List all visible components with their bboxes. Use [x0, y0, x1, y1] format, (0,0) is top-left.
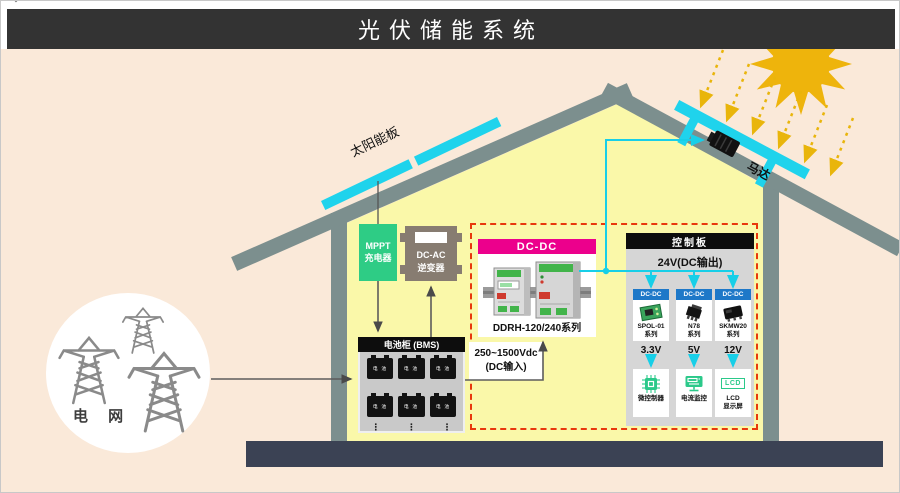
mount-tab [457, 265, 462, 274]
monitor-icon [676, 369, 712, 395]
dc-output-label: 24V(DC输出) [626, 254, 754, 270]
battery-body: 电 池 电 池 电 池 电 池 电 池 电 池 [358, 352, 465, 433]
psu-illustration [478, 254, 596, 320]
dcdc-model: DDRH-120/240系列 [478, 319, 596, 334]
battery-cell: 电 池 [367, 358, 393, 379]
inverter-display [415, 232, 447, 243]
right-wall [763, 179, 779, 441]
page-title: 光伏储能系统 [358, 13, 544, 45]
lcd-label-2: 显示屏 [715, 403, 751, 411]
battery-cell: 电 池 [398, 396, 424, 417]
title-bar: 光伏储能系统 [7, 9, 895, 49]
mppt-label-1: MPPT [365, 242, 390, 251]
battery-cell: 电 池 [367, 396, 393, 417]
module-card-spol01: DC-DC SPOL-01 系列 [633, 289, 669, 341]
dc-input-label: 250~1500Vdc (DC输入) [469, 342, 543, 380]
house-base [246, 441, 883, 467]
mppt-charger-box: MPPT 充电器 [359, 224, 397, 281]
module-card-skmw20: DC-DC SKMW20 系列 [715, 289, 751, 341]
battery-cabinet: 电池柜 (BMS) 电 池 电 池 电 池 电 池 电 池 电 池 ⋮ ⋮ ⋮ [358, 337, 465, 433]
chip-icon [633, 369, 669, 395]
voltage-3v3: 3.3V [633, 345, 669, 356]
grid-label: 电 网 [73, 407, 131, 425]
battery-cell: 电 池 [398, 358, 424, 379]
monitor-card: 电流监控 [676, 369, 712, 417]
dcac-inverter-box: DC-AC 逆变器 [405, 226, 457, 281]
control-board: 控制板 24V(DC输出) DC-DC SPOL-01 系列 [626, 233, 754, 426]
mcu-card: 微控制器 [633, 369, 669, 417]
battery-ellipsis-row: ⋮ ⋮ ⋮ [358, 423, 465, 432]
left-wall [331, 213, 347, 441]
pv-storage-diagram: 马达 太阳能板 [0, 0, 900, 493]
brick-module-icon [715, 300, 751, 323]
battery-header: 电池柜 (BMS) [358, 337, 465, 352]
module-card-n78: DC-DC N78 系列 [676, 289, 712, 341]
inverter-label-2: 逆变器 [405, 262, 457, 275]
monitor-label: 电流监控 [676, 395, 712, 403]
voltage-5v: 5V [676, 345, 712, 356]
inverter-label-1: DC-AC [405, 249, 457, 262]
battery-cell: 电 池 [430, 358, 456, 379]
chip-module-icon [676, 300, 712, 323]
lcd-card: LCD LCD 显示屏 [715, 369, 751, 417]
lcd-icon: LCD [715, 369, 751, 395]
mount-tab [400, 233, 405, 242]
mppt-label-2: 充电器 [364, 254, 391, 263]
mount-tab [457, 233, 462, 242]
dcdc-header: DC-DC [478, 239, 596, 254]
battery-cell: 电 池 [430, 396, 456, 417]
voltage-12v: 12V [715, 345, 751, 356]
pcb-module-icon [633, 300, 669, 323]
lcd-label-1: LCD [715, 395, 751, 403]
mcu-label: 微控制器 [633, 395, 669, 403]
dcdc-converter-box: DC-DC [478, 239, 596, 337]
control-board-header: 控制板 [626, 233, 754, 249]
